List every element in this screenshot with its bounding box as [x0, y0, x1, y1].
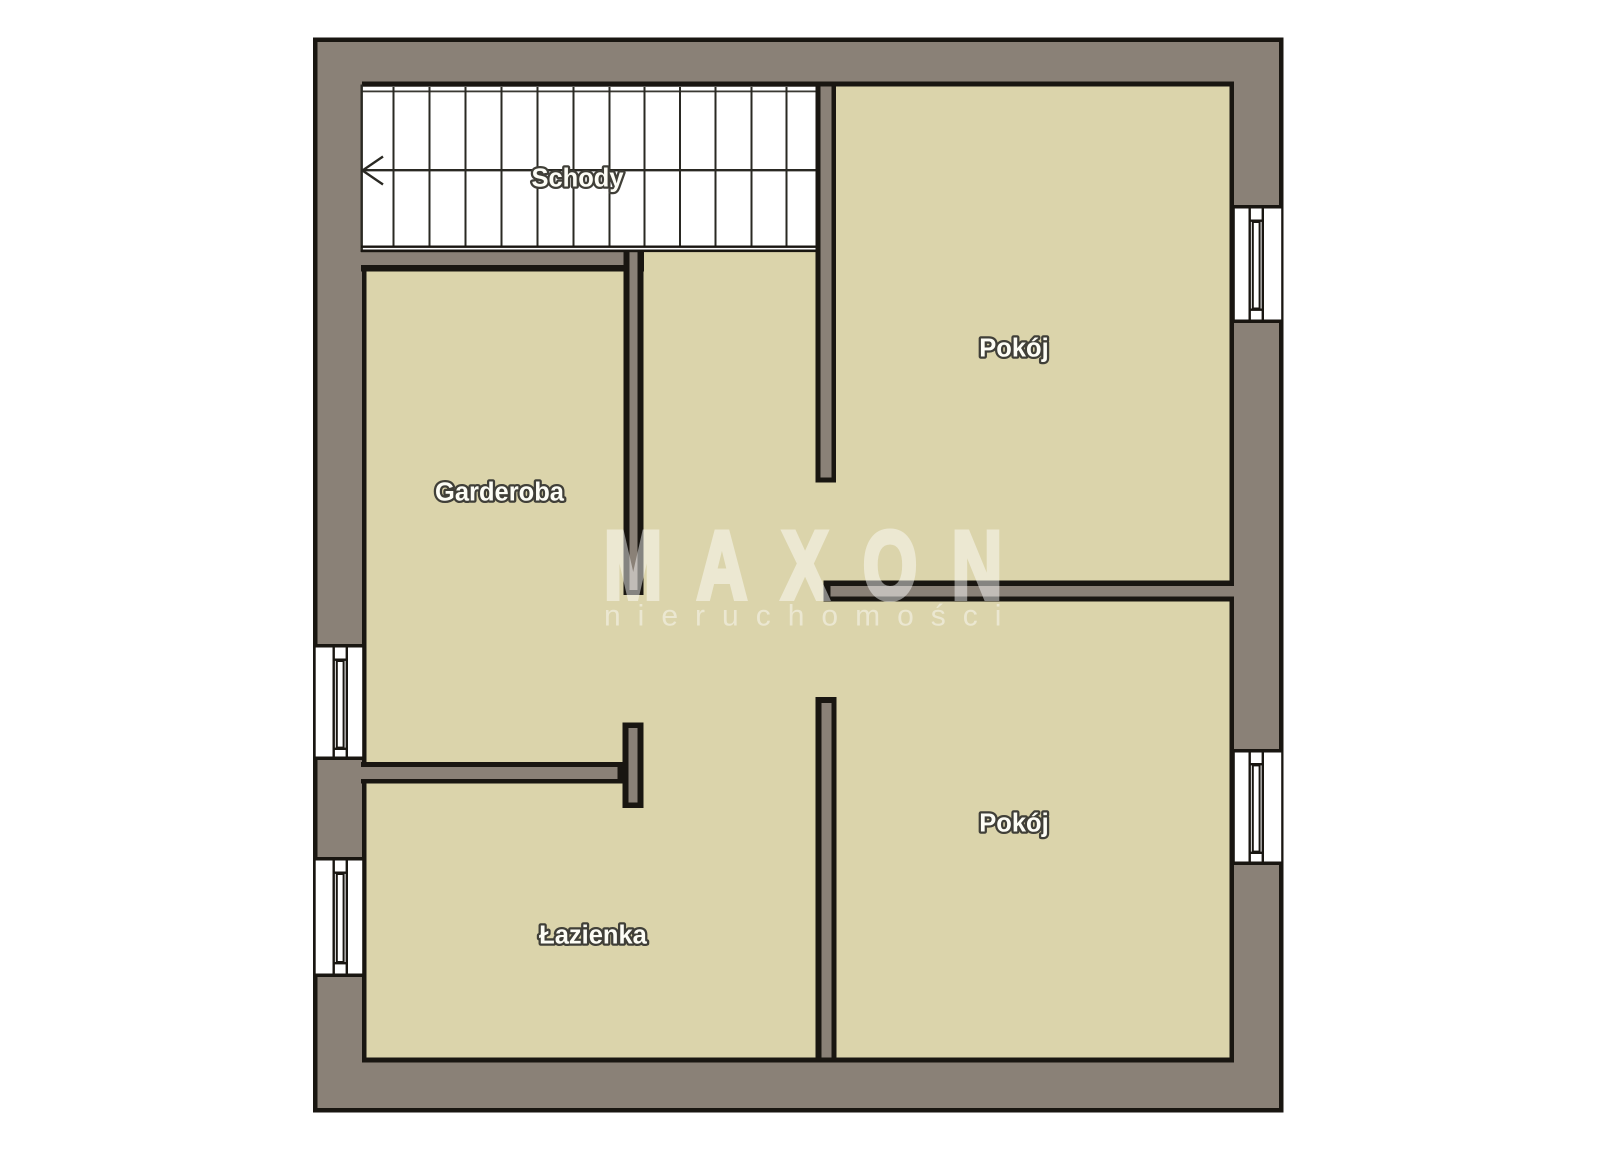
svg-text:Łazienka: Łazienka: [539, 922, 648, 950]
svg-text:Schody: Schody: [531, 165, 624, 193]
svg-text:Pokój: Pokój: [979, 810, 1048, 838]
svg-text:nieruchomości: nieruchomości: [604, 600, 1018, 633]
svg-text:Garderoba: Garderoba: [435, 479, 565, 507]
svg-text:Pokój: Pokój: [979, 335, 1048, 363]
